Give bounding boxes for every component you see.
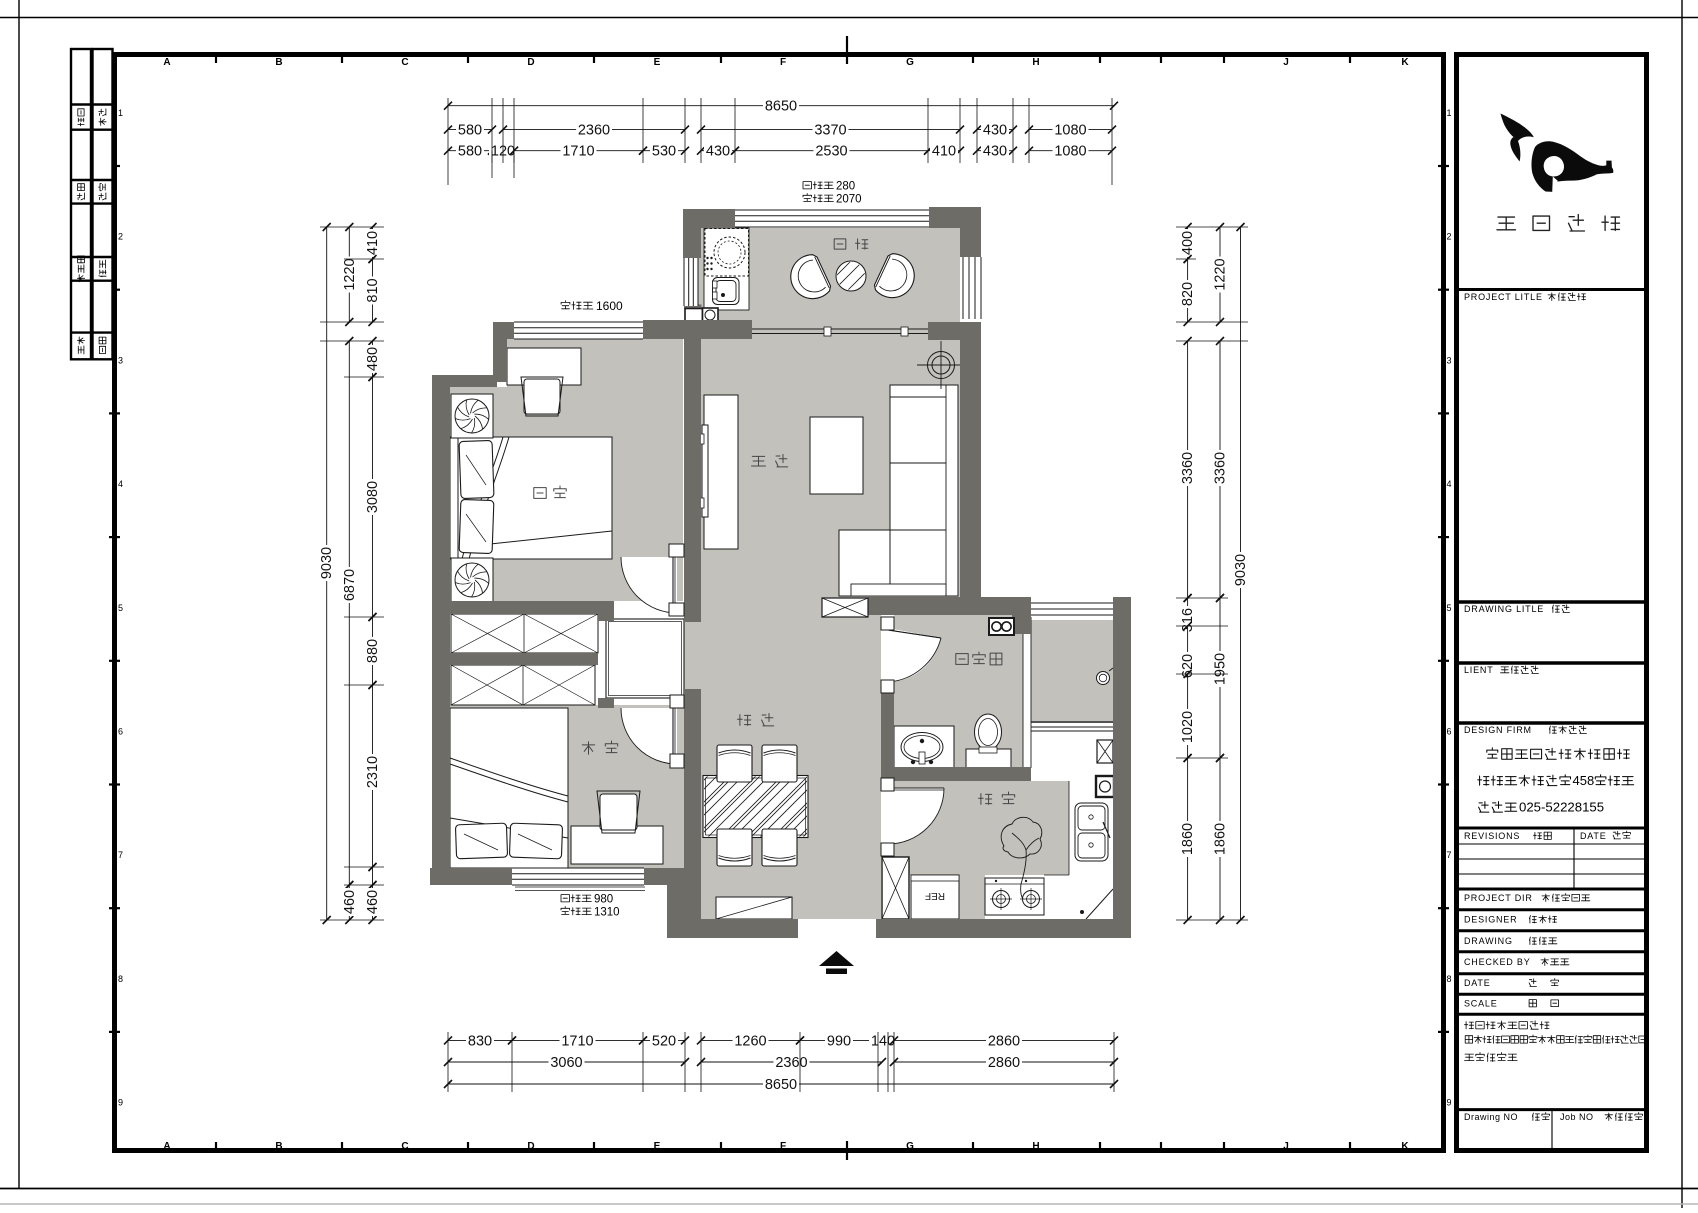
- svg-text:2360: 2360: [775, 1055, 807, 1071]
- svg-text:DRAWING LITLE: DRAWING LITLE: [1464, 604, 1544, 614]
- svg-text:3080: 3080: [365, 481, 381, 513]
- svg-text:A: A: [163, 57, 170, 68]
- svg-text:H: H: [1032, 1141, 1039, 1152]
- svg-text:2530: 2530: [815, 144, 847, 160]
- svg-text:1: 1: [1447, 108, 1452, 118]
- svg-text:430: 430: [983, 144, 1007, 160]
- svg-text:D: D: [527, 1141, 534, 1152]
- svg-text:K: K: [1401, 1141, 1409, 1152]
- svg-text:1860: 1860: [1213, 823, 1229, 855]
- svg-text:430: 430: [706, 144, 730, 160]
- svg-text:2860: 2860: [988, 1033, 1020, 1049]
- svg-text:PROJECT LITLE: PROJECT LITLE: [1464, 292, 1543, 302]
- svg-text:C: C: [401, 1141, 408, 1152]
- svg-text:6870: 6870: [342, 569, 358, 601]
- svg-text:8: 8: [118, 974, 123, 984]
- svg-text:DESIGNER: DESIGNER: [1464, 915, 1517, 925]
- svg-text:8650: 8650: [765, 99, 797, 115]
- svg-text:B: B: [275, 1141, 282, 1152]
- svg-text:1710: 1710: [561, 1033, 593, 1049]
- svg-text:9: 9: [118, 1098, 123, 1108]
- svg-text:E: E: [654, 57, 661, 68]
- svg-text:140: 140: [871, 1033, 895, 1049]
- svg-text:5: 5: [1447, 603, 1452, 613]
- svg-text:REVISIONS: REVISIONS: [1464, 831, 1520, 841]
- svg-text:6: 6: [1447, 727, 1452, 737]
- svg-text:316: 316: [1180, 608, 1196, 632]
- svg-text:Job NO: Job NO: [1560, 1112, 1594, 1122]
- svg-text:8: 8: [1447, 974, 1452, 984]
- svg-text:PROJECT DIR: PROJECT DIR: [1464, 893, 1533, 903]
- svg-text:580: 580: [458, 123, 482, 139]
- svg-text:1310: 1310: [594, 907, 620, 919]
- svg-text:DATE: DATE: [1580, 831, 1607, 841]
- svg-text:460: 460: [342, 890, 358, 914]
- svg-text:4: 4: [1447, 479, 1452, 489]
- svg-text:025-52228155: 025-52228155: [1519, 800, 1604, 815]
- svg-text:REF: REF: [925, 890, 945, 901]
- svg-text:1600: 1600: [596, 299, 623, 313]
- svg-text:880: 880: [365, 639, 381, 663]
- svg-text:7: 7: [1447, 850, 1452, 860]
- svg-text:CHECKED BY: CHECKED BY: [1464, 957, 1531, 967]
- svg-text:530: 530: [652, 144, 676, 160]
- svg-text:3360: 3360: [1180, 452, 1196, 484]
- svg-text:580: 580: [458, 144, 482, 160]
- svg-text:990: 990: [827, 1033, 851, 1049]
- svg-text:G: G: [906, 1141, 914, 1152]
- svg-text:810: 810: [365, 278, 381, 302]
- svg-text:410: 410: [932, 144, 956, 160]
- svg-text:H: H: [1032, 57, 1039, 68]
- svg-text:D: D: [527, 57, 534, 68]
- svg-text:9: 9: [1447, 1098, 1452, 1108]
- svg-text:2070: 2070: [836, 194, 862, 206]
- svg-text:820: 820: [1180, 282, 1196, 306]
- svg-text:1220: 1220: [342, 258, 358, 290]
- svg-text:1950: 1950: [1213, 653, 1229, 685]
- svg-text:F: F: [780, 1141, 786, 1152]
- svg-text:Drawing NO: Drawing NO: [1464, 1112, 1518, 1122]
- svg-text:1: 1: [118, 108, 123, 118]
- svg-text:3: 3: [118, 355, 123, 365]
- svg-text:5: 5: [118, 603, 123, 613]
- svg-text:G: G: [906, 57, 914, 68]
- svg-text:1080: 1080: [1054, 144, 1086, 160]
- svg-text:A: A: [163, 1141, 170, 1152]
- svg-text:1260: 1260: [734, 1033, 766, 1049]
- svg-text:3370: 3370: [814, 123, 846, 139]
- svg-text:K: K: [1401, 57, 1409, 68]
- svg-text:400: 400: [1180, 231, 1196, 255]
- svg-text:2360: 2360: [578, 123, 610, 139]
- svg-text:DRAWING: DRAWING: [1464, 936, 1513, 946]
- svg-text:6: 6: [118, 727, 123, 737]
- svg-text:980: 980: [594, 894, 613, 906]
- svg-text:C: C: [401, 57, 408, 68]
- svg-text:2: 2: [1447, 232, 1452, 242]
- svg-text:1020: 1020: [1180, 711, 1196, 743]
- svg-text:520: 520: [652, 1033, 676, 1049]
- svg-text:460: 460: [365, 890, 381, 914]
- svg-text:8650: 8650: [765, 1077, 797, 1093]
- svg-text:280: 280: [836, 181, 855, 193]
- svg-text:4: 4: [118, 479, 123, 489]
- svg-text:J: J: [1283, 1141, 1289, 1152]
- svg-text:B: B: [275, 57, 282, 68]
- svg-text:1080: 1080: [1054, 123, 1086, 139]
- svg-text:1710: 1710: [562, 144, 594, 160]
- svg-text:830: 830: [468, 1033, 492, 1049]
- svg-text:2860: 2860: [988, 1055, 1020, 1071]
- svg-text:F: F: [780, 57, 786, 68]
- svg-text:410: 410: [365, 231, 381, 255]
- svg-text:2: 2: [118, 232, 123, 242]
- svg-text:LIENT: LIENT: [1464, 665, 1494, 675]
- svg-text:DATE: DATE: [1464, 978, 1491, 988]
- svg-text:2310: 2310: [365, 756, 381, 788]
- svg-text:458: 458: [1573, 773, 1595, 788]
- svg-text:DESIGN FIRM: DESIGN FIRM: [1464, 725, 1532, 735]
- svg-text:1220: 1220: [1213, 258, 1229, 290]
- svg-text:3060: 3060: [550, 1055, 582, 1071]
- svg-text:480: 480: [365, 347, 381, 371]
- svg-text:3: 3: [1447, 355, 1452, 365]
- svg-text:E: E: [654, 1141, 661, 1152]
- svg-text:7: 7: [118, 850, 123, 860]
- svg-text:430: 430: [983, 123, 1007, 139]
- svg-text:3360: 3360: [1213, 452, 1229, 484]
- svg-text:9030: 9030: [319, 547, 335, 579]
- svg-text:1860: 1860: [1180, 823, 1196, 855]
- svg-text:9030: 9030: [1233, 554, 1249, 586]
- svg-text:J: J: [1283, 57, 1289, 68]
- svg-text:SCALE: SCALE: [1464, 999, 1498, 1009]
